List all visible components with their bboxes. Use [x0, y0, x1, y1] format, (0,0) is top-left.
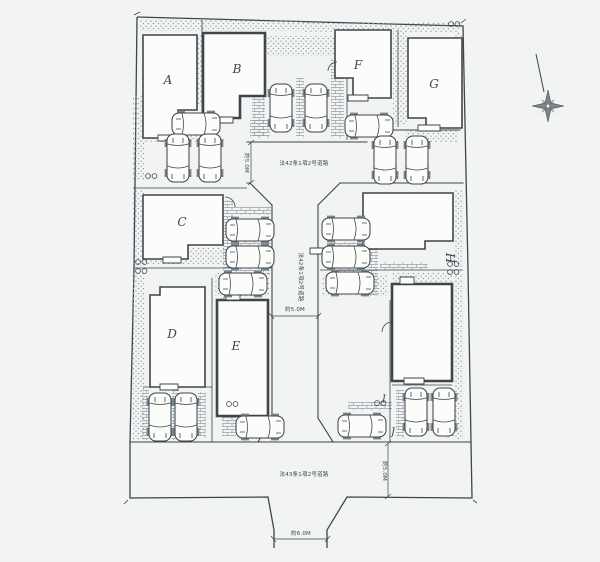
building-d: [150, 287, 205, 387]
car: [219, 271, 267, 298]
car: [303, 84, 330, 132]
building-b-label: B: [232, 62, 242, 76]
road-labels: 法42条1項2号道路 法42条1項2号道路 法43条1項2号道路: [280, 159, 329, 478]
car: [236, 414, 284, 441]
car: [268, 84, 295, 132]
car: [173, 393, 200, 441]
car: [431, 388, 458, 436]
car: [226, 217, 274, 244]
building-e-label: E: [231, 339, 241, 353]
north-compass-icon: [532, 54, 564, 122]
car: [197, 134, 224, 182]
car: [147, 393, 174, 441]
top-road-width: 約5.0M: [243, 153, 251, 173]
entrance-width: 約6.0M: [291, 529, 311, 537]
car: [372, 136, 399, 184]
building-a-label: A: [163, 73, 173, 87]
bottom-road-name: 法43条1項2号道路: [280, 470, 329, 478]
car: [226, 244, 274, 271]
car: [322, 216, 370, 243]
building-c-label: C: [177, 215, 186, 229]
building-j-label: J: [389, 427, 396, 438]
top-road-name: 法42条1項2号道路: [280, 159, 329, 167]
car: [404, 136, 431, 184]
car: [326, 270, 374, 297]
car: [322, 244, 370, 271]
building-d-label: D: [166, 327, 177, 341]
car: [403, 388, 430, 436]
car: [165, 134, 192, 182]
car: [345, 113, 393, 140]
center-road-width: 約5.0M: [285, 305, 305, 313]
bottom-road-width: 約5.0M: [381, 461, 389, 481]
car: [338, 413, 386, 440]
building-i: [392, 284, 452, 381]
car: [172, 111, 220, 138]
building-g-label: G: [429, 77, 439, 91]
site-plan-page: A B F G C H D E I J 法42条1項2号道路 法42条1項2号道…: [0, 0, 600, 562]
site-plan-drawing: A B F G C H D E I J 法42条1項2号道路 法42条1項2号道…: [0, 0, 600, 562]
building-h: [363, 193, 453, 249]
building-f-label: F: [353, 58, 363, 72]
building-e: [217, 300, 268, 416]
center-road-name: 法42条1項2号道路: [297, 253, 305, 302]
